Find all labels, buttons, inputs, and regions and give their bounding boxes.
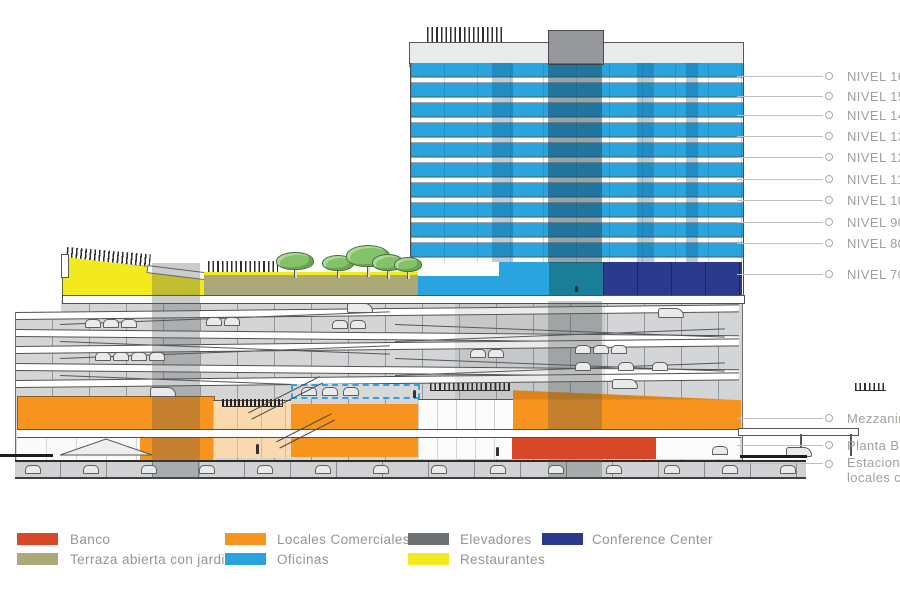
level-label-row: NIVEL 1500 xyxy=(737,87,900,105)
car-icon xyxy=(315,465,331,474)
car-icon xyxy=(322,387,338,396)
car-icon xyxy=(257,465,273,474)
car-icon xyxy=(373,465,389,474)
ground-line xyxy=(0,454,53,457)
basement-parking xyxy=(15,460,806,479)
open-floor-under-tower xyxy=(418,399,513,430)
level-label-row: NIVEL 1000 xyxy=(737,191,900,209)
leader-circle-icon xyxy=(825,270,833,278)
leader-line xyxy=(737,274,823,275)
offices-block xyxy=(412,276,499,295)
leader-line xyxy=(737,157,823,158)
car-icon xyxy=(431,465,447,474)
leader-line xyxy=(737,179,823,180)
car-icon xyxy=(611,345,627,354)
car-icon xyxy=(224,317,240,326)
car-icon xyxy=(149,352,165,361)
tower-glass-strip xyxy=(637,63,654,263)
car-icon xyxy=(488,349,504,358)
level-label: NIVEL 1000 xyxy=(847,193,900,208)
legend-swatch xyxy=(542,533,583,545)
level-label-row: Planta Baja xyxy=(737,436,900,454)
ground-floor-open-right xyxy=(656,436,740,459)
tree-icon xyxy=(276,252,314,278)
legend-label: Oficinas xyxy=(277,552,329,567)
car-icon xyxy=(490,465,506,474)
car-icon xyxy=(575,362,591,371)
leader-circle-icon xyxy=(825,153,833,161)
person-icon xyxy=(256,444,259,454)
tree-icon xyxy=(394,257,422,279)
car-icon xyxy=(658,308,684,318)
level-label: NIVEL 1300 xyxy=(847,129,900,144)
level-label: Planta Baja xyxy=(847,438,900,453)
leader-circle-icon xyxy=(825,196,833,204)
leader-line xyxy=(737,445,823,446)
car-icon xyxy=(606,465,622,474)
car-icon xyxy=(25,465,41,474)
podium-elevator-core xyxy=(152,263,200,479)
entry-canopy xyxy=(738,428,859,436)
leader-line xyxy=(737,222,823,223)
leader-circle-icon xyxy=(825,111,833,119)
leader-line xyxy=(737,418,823,419)
legend-swatch xyxy=(17,553,58,565)
legend-swatch xyxy=(408,553,449,565)
car-icon xyxy=(612,379,638,389)
car-icon xyxy=(343,387,359,396)
car-icon xyxy=(664,465,680,474)
elevator-core-top xyxy=(548,30,604,65)
leader-circle-icon xyxy=(825,239,833,247)
legend-label: Terraza abierta con jardines xyxy=(70,552,248,567)
leader-circle-icon xyxy=(825,441,833,449)
car-icon xyxy=(83,465,99,474)
level-label-row: NIVEL 1100 xyxy=(737,170,900,188)
car-icon xyxy=(652,362,668,371)
leader-line xyxy=(737,200,823,201)
leader-circle-icon xyxy=(825,132,833,140)
person-icon xyxy=(575,286,578,292)
section-diagram: NIVEL 1600 NIVEL 1500 NIVEL 1400 NIVEL 1… xyxy=(0,0,900,600)
level-label: NIVEL 1600 xyxy=(847,69,900,84)
level-label-row: NIVEL 1300 xyxy=(737,127,900,145)
podium-notch xyxy=(15,301,61,312)
level-label-row: NIVEL 1200 xyxy=(737,148,900,166)
tower-glass-strip xyxy=(686,63,698,263)
car-icon xyxy=(350,320,366,329)
level-label: NIVEL 1200 xyxy=(847,150,900,165)
car-icon xyxy=(131,352,147,361)
terrace-railing-icon xyxy=(430,383,510,391)
level-label: NIVEL 1500 xyxy=(847,89,900,104)
elevator-core-shaft xyxy=(548,63,602,263)
car-icon xyxy=(103,319,119,328)
leader-circle-icon xyxy=(825,92,833,100)
legend-label: Conference Center xyxy=(592,532,713,547)
level-label: Estacionam locales com xyxy=(847,455,900,485)
car-icon xyxy=(95,352,111,361)
car-icon xyxy=(548,465,564,474)
car-icon xyxy=(722,465,738,474)
level-label: NIVEL 700 xyxy=(847,267,900,282)
leader-line xyxy=(737,96,823,97)
legend-label: Elevadores xyxy=(460,532,532,547)
car-icon xyxy=(141,465,157,474)
legend-swatch xyxy=(225,553,266,565)
car-icon xyxy=(470,349,486,358)
legend-swatch xyxy=(17,533,58,545)
leader-line xyxy=(737,76,823,77)
legend-label: Restaurantes xyxy=(460,552,545,567)
level-label: NIVEL 900 xyxy=(847,215,900,230)
conference-center-block xyxy=(603,262,742,295)
person-icon xyxy=(413,390,416,398)
leader-line xyxy=(737,115,823,116)
car-icon xyxy=(121,319,137,328)
level-label: Mezzanine xyxy=(847,411,900,426)
car-icon xyxy=(332,320,348,329)
leader-line xyxy=(737,243,823,244)
leader-circle-icon xyxy=(825,460,833,468)
level-label-row: NIVEL 1600 xyxy=(737,67,900,85)
level-label-row: Estacionam locales com xyxy=(737,455,900,473)
car-icon xyxy=(150,387,176,397)
level-label-row: NIVEL 900 xyxy=(737,213,900,231)
legend-swatch xyxy=(225,533,266,545)
person-icon xyxy=(496,447,499,456)
leader-circle-icon xyxy=(825,218,833,226)
level-label-row: Mezzanine xyxy=(737,409,900,427)
level-label-row: NIVEL 1400 xyxy=(737,106,900,124)
car-icon xyxy=(618,362,634,371)
car-icon xyxy=(85,319,101,328)
car-icon xyxy=(712,446,728,455)
car-icon xyxy=(206,317,222,326)
parapet-post xyxy=(61,254,69,278)
car-icon xyxy=(593,345,609,354)
level-label: NIVEL 800 xyxy=(847,236,900,251)
level-label: NIVEL 1100 xyxy=(847,172,900,187)
car-icon xyxy=(113,352,129,361)
ramp-triangle-icon xyxy=(58,437,154,457)
level-label: NIVEL 1400 xyxy=(847,108,900,123)
level-label-row: NIVEL 800 xyxy=(737,234,900,252)
terrace-railing-icon xyxy=(855,383,886,391)
leader-circle-icon xyxy=(825,72,833,80)
car-icon xyxy=(347,303,373,313)
legend-swatch xyxy=(408,533,449,545)
leader-circle-icon xyxy=(825,414,833,422)
car-icon xyxy=(575,345,591,354)
legend-label: Banco xyxy=(70,532,110,547)
offices-block xyxy=(499,262,549,295)
leader-line xyxy=(737,463,823,464)
leader-line xyxy=(737,136,823,137)
tower-glass-strip xyxy=(492,63,513,263)
legend-label: Locales Comerciales xyxy=(277,532,410,547)
level-label-row: NIVEL 700 xyxy=(737,265,900,283)
car-icon xyxy=(199,465,215,474)
leader-circle-icon xyxy=(825,175,833,183)
